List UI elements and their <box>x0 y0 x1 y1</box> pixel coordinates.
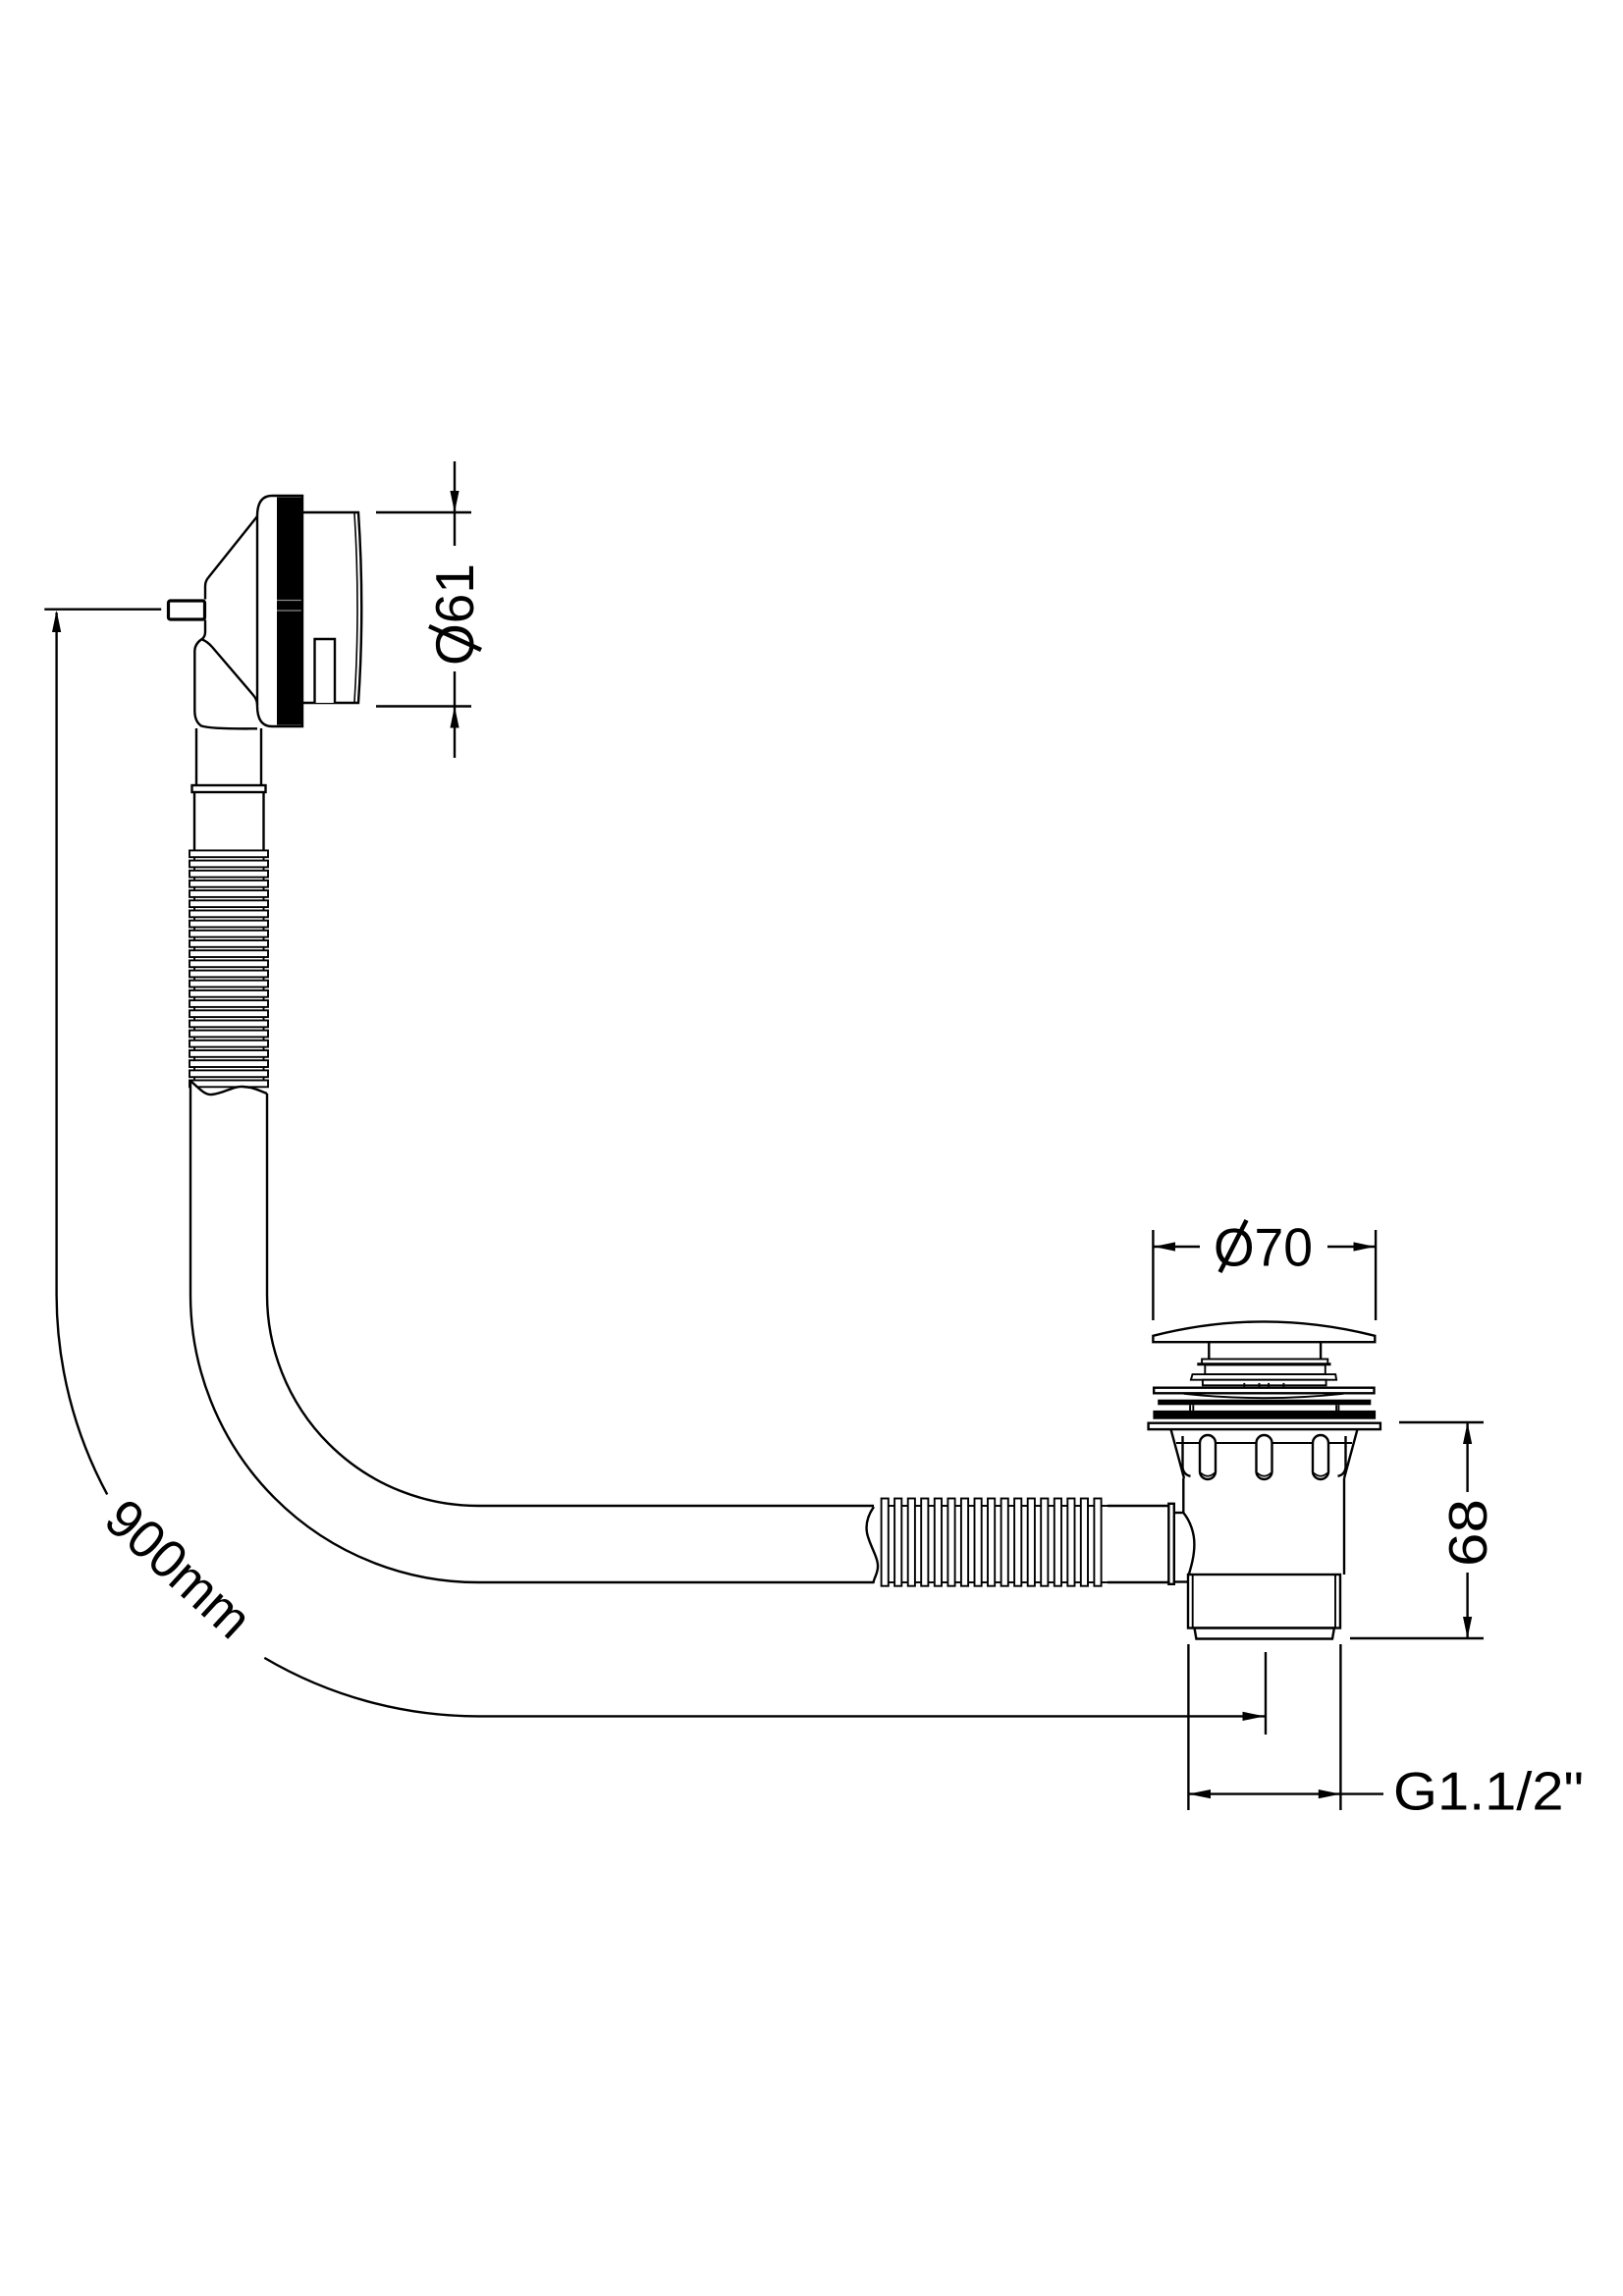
svg-text:68: 68 <box>1437 1499 1498 1567</box>
svg-text:O70: O70 <box>1214 1217 1313 1278</box>
svg-text:G1.1/2": G1.1/2" <box>1393 1761 1584 1822</box>
svg-text:O61: O61 <box>424 563 485 666</box>
